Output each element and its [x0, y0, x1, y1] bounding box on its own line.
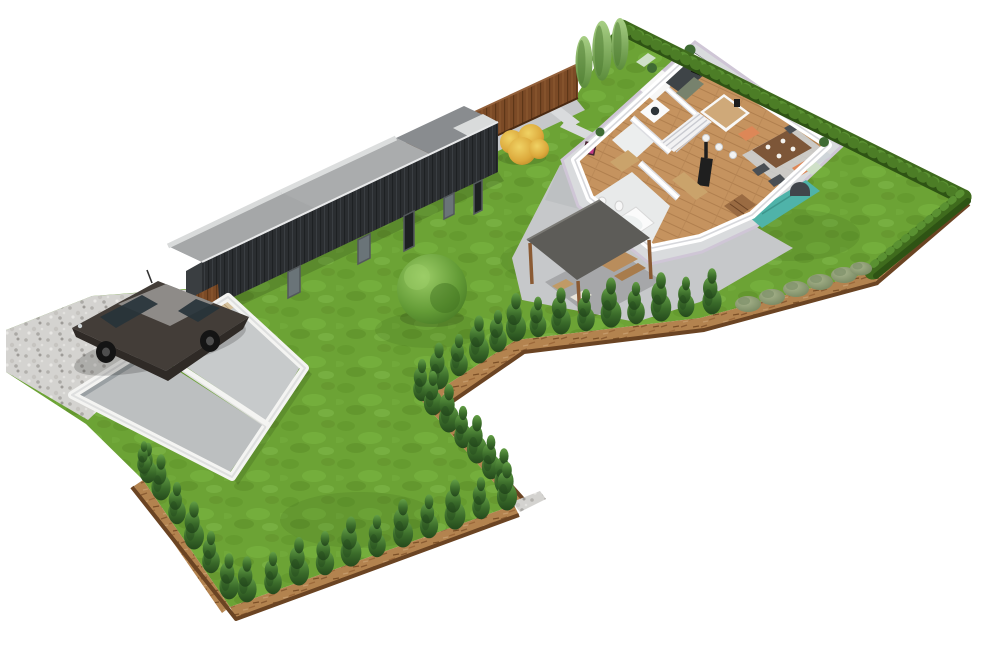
round-deciduous-tree: [397, 254, 467, 327]
car-headlight: [78, 324, 82, 328]
coffee-machine: [734, 99, 740, 107]
toilet: [615, 201, 623, 211]
site-plan-canvas: [0, 0, 1000, 647]
isometric-scene: [0, 0, 1000, 647]
car-antenna: [147, 270, 152, 283]
